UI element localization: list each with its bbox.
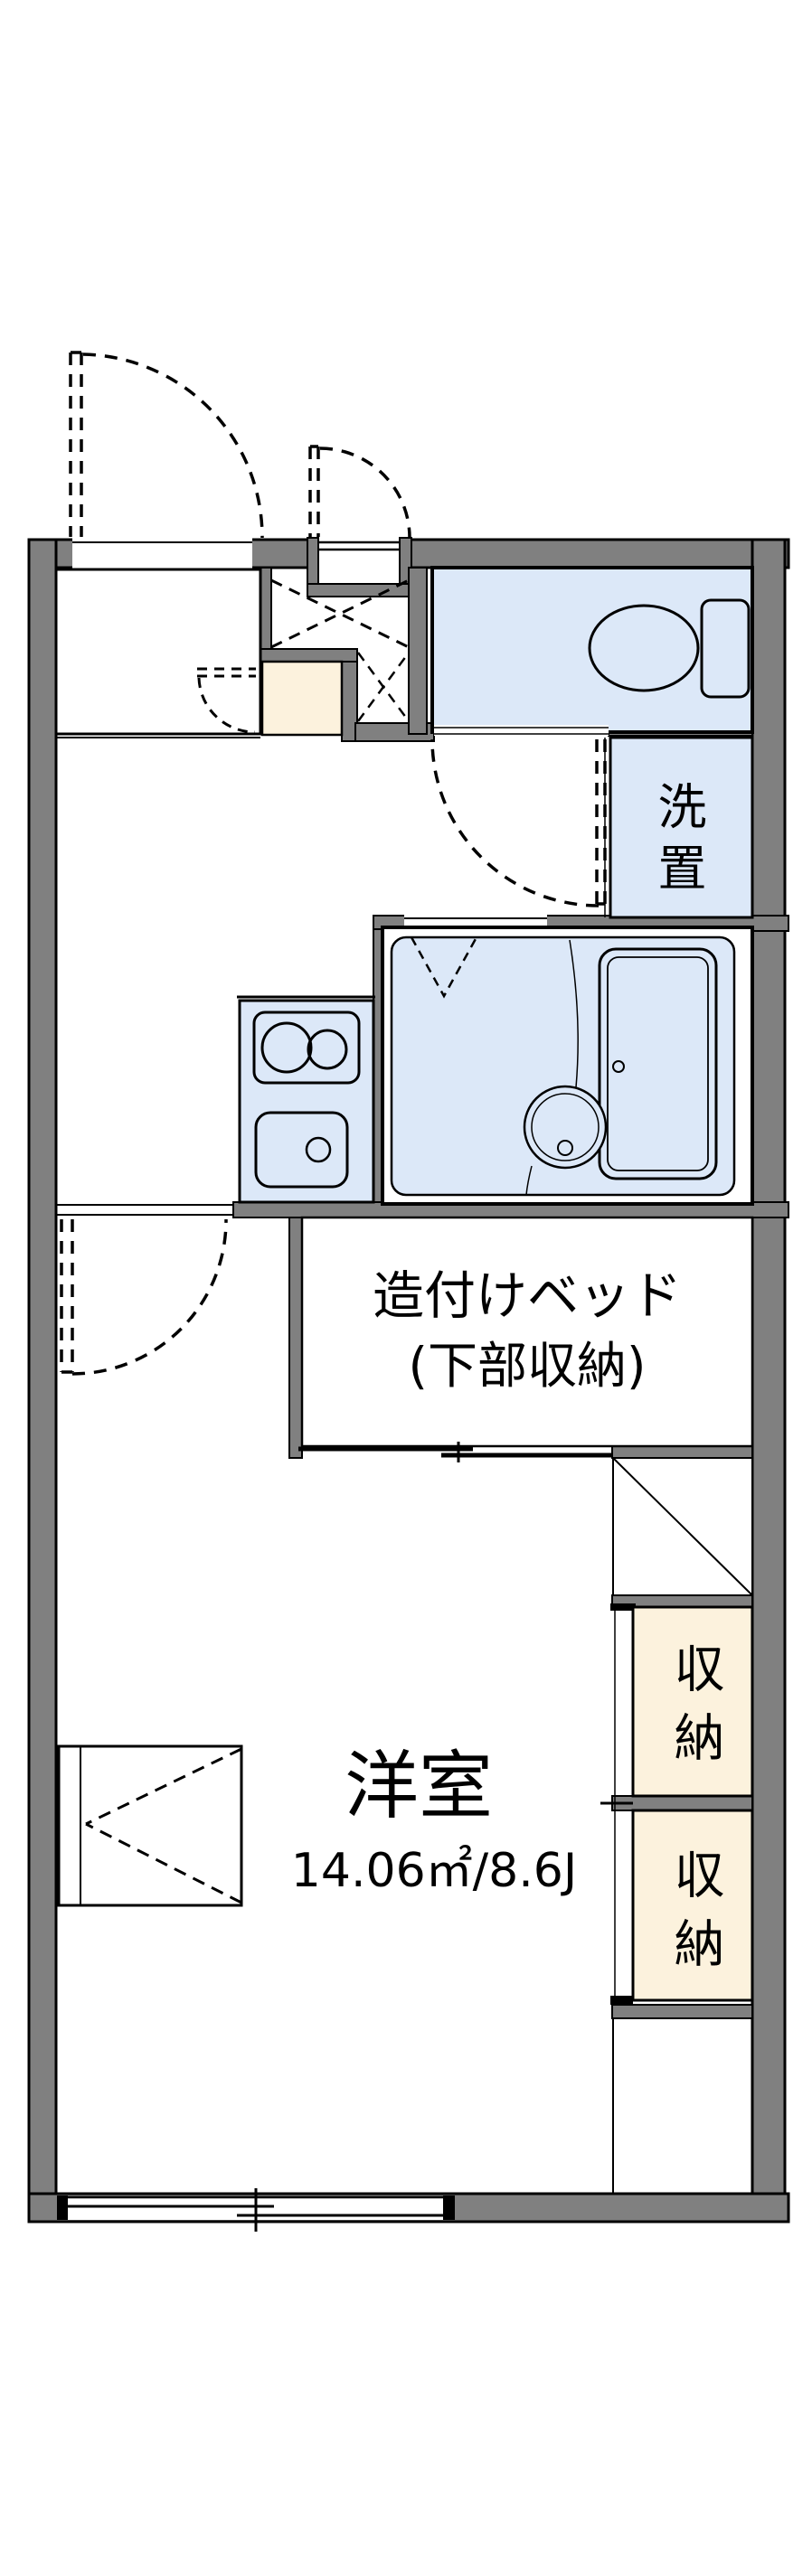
service-door-niche xyxy=(307,536,411,597)
main-room-name-label: 洋室 xyxy=(292,1750,545,1824)
built-in-bed-room xyxy=(302,1217,752,1446)
wall-right xyxy=(752,540,785,2222)
closet-toilet-wall xyxy=(409,568,427,734)
entry-door-swing-icon xyxy=(71,353,262,538)
stove-burners-icon xyxy=(254,1012,359,1083)
toilet-door-swing-icon xyxy=(432,739,605,906)
service-door-swing-icon xyxy=(310,447,410,538)
built-in-bed-label: 造付けベッド xyxy=(302,1267,752,1327)
storage-bottom-wall xyxy=(612,2005,752,2018)
storage-upper-label: 収納 xyxy=(667,1634,723,1788)
kitchen-sink-icon xyxy=(256,1113,347,1187)
toilet-icon xyxy=(590,600,749,697)
bathroom xyxy=(382,927,752,1204)
toilet-door-opening xyxy=(434,725,609,736)
main-room-area-label: 14.06㎡/8.6J xyxy=(244,1847,624,1894)
wash-basin-icon xyxy=(524,1086,606,1168)
entrance-genkan xyxy=(56,569,260,734)
closet-mid-wall xyxy=(259,649,357,662)
hallway-door-opening xyxy=(56,1205,233,1215)
kitchen xyxy=(237,997,375,1202)
storage-lower-label: 収納 xyxy=(667,1840,723,1994)
wall-stub-2 xyxy=(610,1996,633,2005)
fridge-nook-top-wall xyxy=(612,1446,752,1458)
shoe-cabinet xyxy=(262,662,342,735)
floor-plan-page: 洗置 造付けベッド (下部収納) 洋室 14.06㎡/8.6J 収納 収納 xyxy=(0,0,812,2576)
under-bed-storage-label: (下部収納) xyxy=(302,1338,752,1395)
bay-counter-icon xyxy=(59,1746,241,1905)
refrigerator-space-icon xyxy=(613,1458,752,1595)
entrance-opening xyxy=(72,536,252,569)
bathtub-icon xyxy=(600,949,716,1179)
hallway-door-swing-icon xyxy=(61,1219,226,1374)
toilet-tank-icon xyxy=(702,600,749,697)
bedroom-left-wall xyxy=(289,1217,302,1458)
storage-divider-wall xyxy=(612,1796,752,1810)
wall-left xyxy=(29,540,56,2222)
washer-space-label: 洗置 xyxy=(647,770,705,915)
